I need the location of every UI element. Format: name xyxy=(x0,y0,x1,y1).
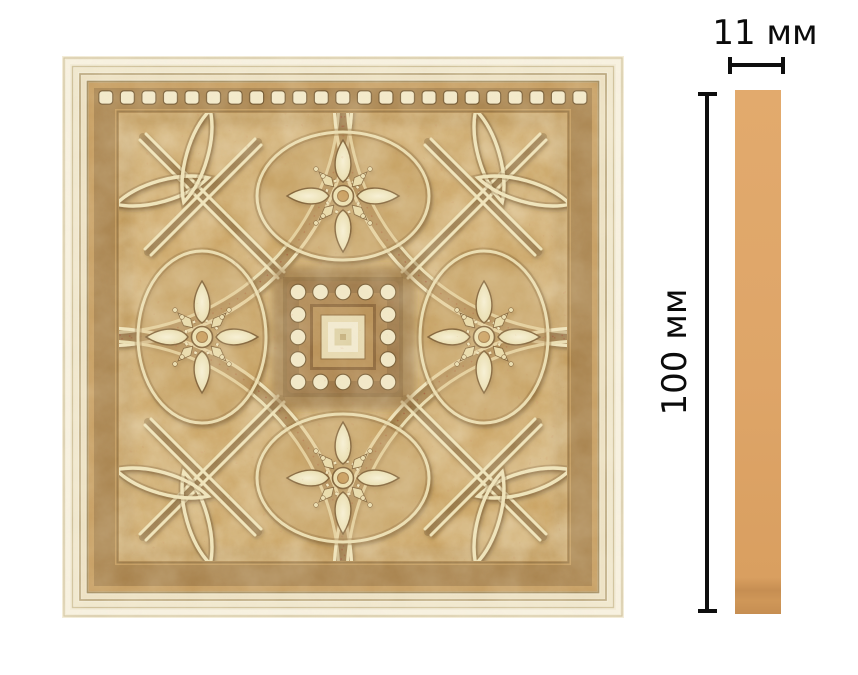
height-measure-line xyxy=(705,92,709,613)
product-dimension-figure: 11 мм 100 мм xyxy=(0,0,858,675)
center-medallion xyxy=(273,267,413,407)
height-dimension-label: 100 мм xyxy=(655,288,695,415)
decorative-tile-image xyxy=(62,56,624,618)
width-dimension-label: 11 мм xyxy=(712,14,818,53)
width-measure-line xyxy=(728,63,785,67)
profile-thickness-bar xyxy=(735,90,781,614)
